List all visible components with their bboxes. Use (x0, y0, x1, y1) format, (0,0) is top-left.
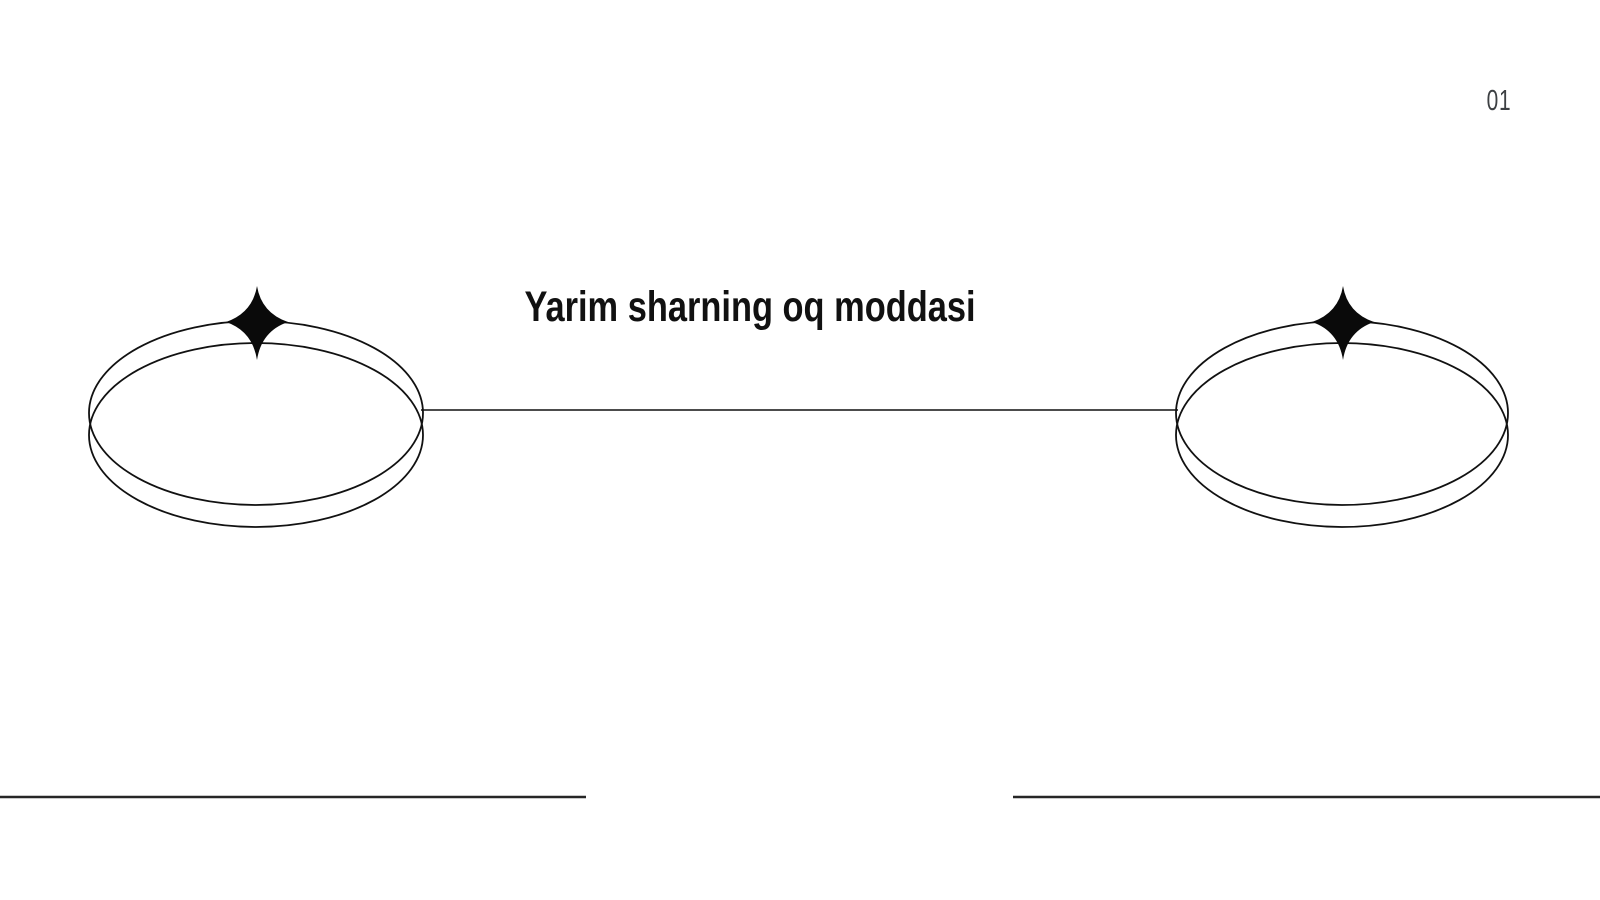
left-ring-lower-ellipse (89, 343, 423, 527)
right-ellipse-ring (1176, 286, 1508, 527)
page-number-text: 01 (1487, 87, 1512, 116)
slide-title-text: Yarim sharning oq moddasi (524, 286, 975, 329)
page-number: 01 (1482, 87, 1516, 116)
right-ring-lower-ellipse (1176, 343, 1508, 527)
slide: Yarim sharning oq moddasi 01 (0, 0, 1600, 900)
diagram-canvas (0, 0, 1600, 900)
left-four-point-sparkle-icon (226, 286, 288, 360)
left-ellipse-ring (89, 286, 423, 527)
slide-title: Yarim sharning oq moddasi (468, 286, 1032, 329)
right-four-point-sparkle-icon (1312, 286, 1374, 360)
